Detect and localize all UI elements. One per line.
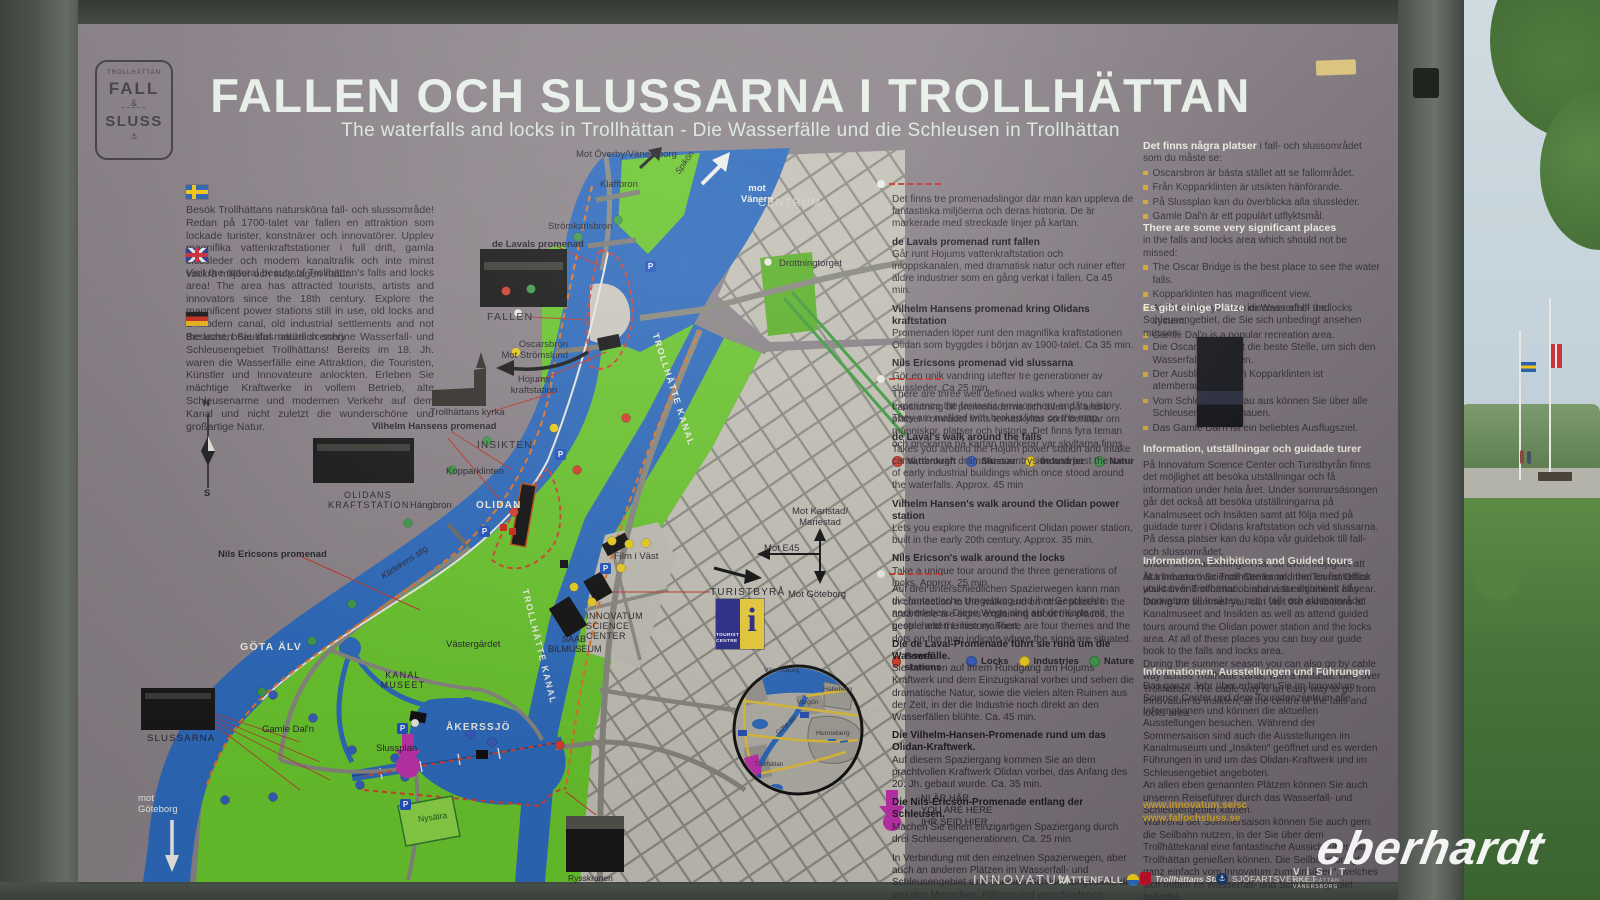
walk-body: Auf diesem Spaziergang kommen Sie an dem… (892, 755, 1134, 792)
guidebook-cover-photo (1197, 337, 1243, 427)
parking-icon: P (645, 261, 656, 272)
info-de-heading: Informationen, Ausstellungen und Führung… (1143, 666, 1383, 678)
compass (201, 414, 215, 488)
map-label-mot-goteborg: mot Göteborg (138, 794, 178, 815)
bullet-icon (1143, 214, 1148, 219)
place-item: Kopparklinten has magnificent view. (1153, 289, 1312, 301)
logo-waves: ~~~~~ (97, 107, 171, 111)
place-item: Das Gamle Dal'n ist ein beliebtes Ausflu… (1153, 423, 1358, 435)
info-sv-heading: Information, utställningar och guidade t… (1143, 443, 1383, 455)
map-label-nils-ericsons-promenad: Nils Ericsons promenad (218, 550, 327, 561)
parking-icon: P (397, 723, 408, 734)
person (1527, 451, 1531, 464)
bullet-icon (1143, 399, 1148, 404)
page-title: FALLEN OCH SLUSSARNA I TROLLHÄTTAN (178, 68, 1283, 123)
walk-title: Die de Laval-Promenade führt sie rund um… (892, 639, 1134, 663)
tourist-centre-logo: TOURISTCENTRE i (716, 599, 764, 649)
map-label-turistbyra: TURISTBYRÅ (710, 587, 785, 598)
walk-title: Die Nils-Ericson-Promenade entlang der S… (892, 797, 1134, 821)
map-label-kopparklinten: Kopparklinten (446, 467, 504, 478)
person (1520, 450, 1524, 464)
bullet-icon (1143, 265, 1148, 270)
flag-pole (1549, 298, 1551, 480)
sign-mot-e45: Mot E45 (764, 544, 799, 555)
walk-title: Die Vilhelm-Hansen-Promenade rund um das… (892, 730, 1134, 754)
map-label-stromkarlsbron: Strömkarlsbron (548, 222, 612, 233)
compass-north: N (203, 399, 210, 410)
swedish-flag (1521, 362, 1536, 372)
map-label-centrum: CENTRUM (758, 197, 821, 209)
innovatum-logo: INNOVATUM (973, 872, 1072, 887)
walk-body: Sie kommen auf ihrem Rundgang am Hojums … (892, 663, 1134, 724)
map-label-kanalmuseet: KANAL MUSEET (378, 670, 428, 690)
walk-body: Promenaden löper runt den magnifika kraf… (892, 328, 1134, 352)
vattenfall-icon (1127, 874, 1139, 886)
walk-body: Machen Sie einen einzigartigen Spazierga… (892, 822, 1134, 846)
place-item: Oscarsbron är bästa stället att se fallo… (1153, 168, 1355, 180)
watermark: eberhardt (1313, 820, 1548, 875)
frame-right-post (1398, 0, 1464, 900)
arrowhead (496, 360, 514, 376)
place-item: The Oscar Bridge is the best place to se… (1153, 262, 1384, 287)
sign-mot-karlstad-mariestad: Mot Karlstad/ Mariestad (780, 507, 860, 528)
building (509, 528, 516, 535)
building (476, 750, 488, 759)
walk-title: Nils Ericsons promenad vid slussarna (892, 358, 1134, 370)
walk-body: Takes you around the Hojum power station… (892, 444, 1134, 493)
place-item: Die Oscarsbrücke ist die beste Stelle, u… (1153, 342, 1384, 367)
church-drawing (432, 352, 486, 406)
map-label-oscarsbron: Oscarsbron Mot Strömslund (498, 340, 568, 361)
trail-mark-icon (877, 375, 941, 383)
map-label-fallen: FALLEN (487, 312, 533, 324)
walkway (1462, 468, 1600, 502)
inset-label-trollhattan: Trollhättan (755, 762, 783, 768)
bullet-icon (1143, 185, 1148, 190)
frame-bracket (1413, 68, 1439, 98)
place-item: På Slussplan kan du överblicka alla slus… (1153, 197, 1360, 209)
map-label-drottningtorget: Drottningtorget (779, 259, 842, 270)
sticker (1316, 59, 1356, 75)
places-en-heading: There are some very significant places (1143, 222, 1336, 234)
map-label-rysskranen: Rysskranen (568, 874, 613, 884)
walk-title: de Laval's walk around the falls (892, 432, 1134, 444)
vattenfall-logo: VATTENFALL (1058, 874, 1139, 886)
walks-en-intro: There are three well defined walks where… (892, 389, 1134, 426)
map-label-slussplan: Slussplan (376, 744, 417, 755)
bullet-icon (1143, 345, 1148, 350)
bullet-icon (1143, 200, 1148, 205)
info-en-heading: Information, Exhibitions and Guided tour… (1143, 555, 1383, 567)
parking-icon: P (555, 449, 566, 460)
map-label-insikten: INSIKTEN (477, 440, 533, 451)
logo-fall: FALL (97, 79, 171, 99)
map-label-de-lavals-promenad: de Lavals promenad (492, 240, 584, 251)
sign-mot-goteborg: Mot Göteborg (788, 590, 846, 601)
trail-mark-icon (877, 570, 941, 578)
walk-body: Lets you explore the magnificent Olidan … (892, 523, 1134, 547)
building (500, 524, 507, 531)
map-label-trollhattans-kyrka: Trollhättans kyrka (430, 408, 505, 419)
bullet-icon (1143, 171, 1148, 176)
map-label-hangbron: Hängbron (410, 501, 452, 512)
places-swedish: Det finns några platser i fall- och slus… (1143, 140, 1383, 223)
places-en-heading-rest: in the falls and locks area which should… (1143, 235, 1347, 258)
places-german: Es gibt einige Plätze im Wasserfall- und… (1143, 302, 1383, 435)
parking-icon: P (600, 563, 611, 574)
map-label-olidans-kraftstation: OLIDANS KRAFTSTATION (328, 490, 408, 510)
inset-label-vanersborg: Vänersborg (764, 667, 799, 674)
map-label-klaffbron: Klaffbron (600, 180, 638, 191)
walks-german: Auf drei unterschiedlichen Spazierwegen … (892, 584, 1134, 900)
walk-title: Vilhelm Hansen's walk around the Olidan … (892, 499, 1134, 523)
map-label-akerssjo: ÅKERSSJÖ (446, 722, 511, 733)
map-label-gota-alv: GÖTA ÄLV (240, 642, 302, 654)
parking-icon: P (479, 526, 490, 537)
bullet-icon (1143, 426, 1148, 431)
map-label-slussarna: SLUSSARNA (147, 734, 215, 745)
map-label-olidan: OLIDAN (476, 500, 522, 511)
map-label-vastergardet: Västergärdet (446, 640, 500, 651)
link-fallochsluss: www.fallochsluss.se (1143, 813, 1240, 824)
building (560, 560, 568, 568)
inset-label-hunneberg: Hunneberg (816, 730, 850, 737)
info-i-icon: i (740, 599, 764, 649)
anchor-icon: ⚓ (1216, 873, 1228, 885)
trollhattans-stad-logo: Trollhättans Stad (1140, 872, 1224, 885)
page-subtitle: The waterfalls and locks in Trollhättan … (178, 120, 1283, 142)
tourist-logo-line2: CENTRE (716, 639, 740, 645)
trail-mark-icon (877, 180, 941, 188)
inset-label-halleberg: Halleberg (823, 686, 852, 693)
logo-arc-text: TROLLHÄTTAN (97, 70, 171, 76)
map-label-film-i-vast: Film i Väst (614, 552, 658, 563)
photo-of-information-board: TROLLHÄTTAN FALL & ~~~~~ SLUSS ⚓ FALLEN … (0, 0, 1600, 900)
place-item: Från Kopparklinten är utsikten hänförand… (1153, 182, 1343, 194)
frame-top-beam (0, 0, 1464, 24)
map-label-hojums-kraftstation: Hojums kraftstation (505, 375, 563, 396)
map-label-saab-bilmuseum: SAAB BILMUSEUM (548, 634, 600, 654)
walk-title: de Lavals promenad runt fallen (892, 237, 1134, 249)
walk-title: Nils Ericson's walk around the locks (892, 553, 1134, 565)
places-de-heading: Es gibt einige Plätze (1143, 302, 1245, 314)
walk-title: Vilhelm Hansens promenad kring Olidans k… (892, 304, 1134, 328)
link-innovatum: www.innovatum.se/sc (1143, 800, 1247, 811)
frame-left-post (0, 0, 78, 900)
map-label-mot-overby: Mot Överby/Vänersborg (576, 150, 677, 161)
logo-sluss: SLUSS (97, 113, 171, 130)
walks-sv-intro: Det finns tre promenadslingor där man ka… (892, 194, 1134, 231)
inset-label-vargon: Vargön (797, 699, 818, 706)
place-item: Der Ausblick von den Kopparklinten ist a… (1153, 369, 1384, 394)
map-label-vilhelm-hansens-promenad: Vilhelm Hansens promenad (372, 422, 496, 433)
vattenfall-label: VATTENFALL (1058, 875, 1123, 886)
flag (1551, 344, 1562, 368)
stad-icon (1140, 872, 1151, 885)
walks-de-intro: Auf drei unterschiedlichen Spazierwegen … (892, 584, 1134, 633)
walk-body: Går runt Hojums vattenkraftstation och i… (892, 249, 1134, 298)
bullet-icon (1143, 292, 1148, 297)
stad-label: Trollhättans Stad (1155, 874, 1224, 884)
visit-line3: VÄNERSBORG (1293, 884, 1347, 890)
parking-icon: P (400, 799, 411, 810)
bench (1538, 472, 1572, 481)
compass-south: S (204, 489, 210, 500)
bullet-icon (1143, 372, 1148, 377)
place-item: Vom Schleusenplateau aus können Sie über… (1153, 396, 1384, 421)
places-sv-heading: Det finns några platser (1143, 140, 1257, 152)
map-label-gamle-daln: Gamle Dal'n (262, 725, 314, 736)
